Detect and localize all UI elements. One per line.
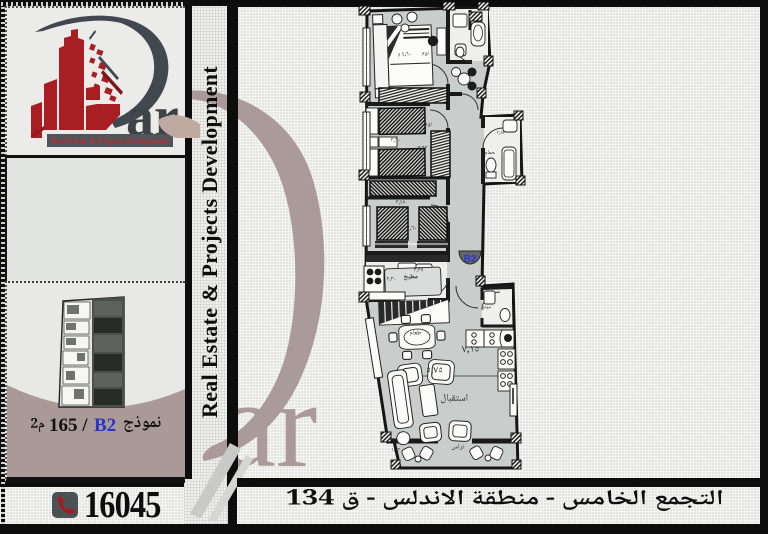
svg-text:B2: B2 xyxy=(464,254,477,265)
